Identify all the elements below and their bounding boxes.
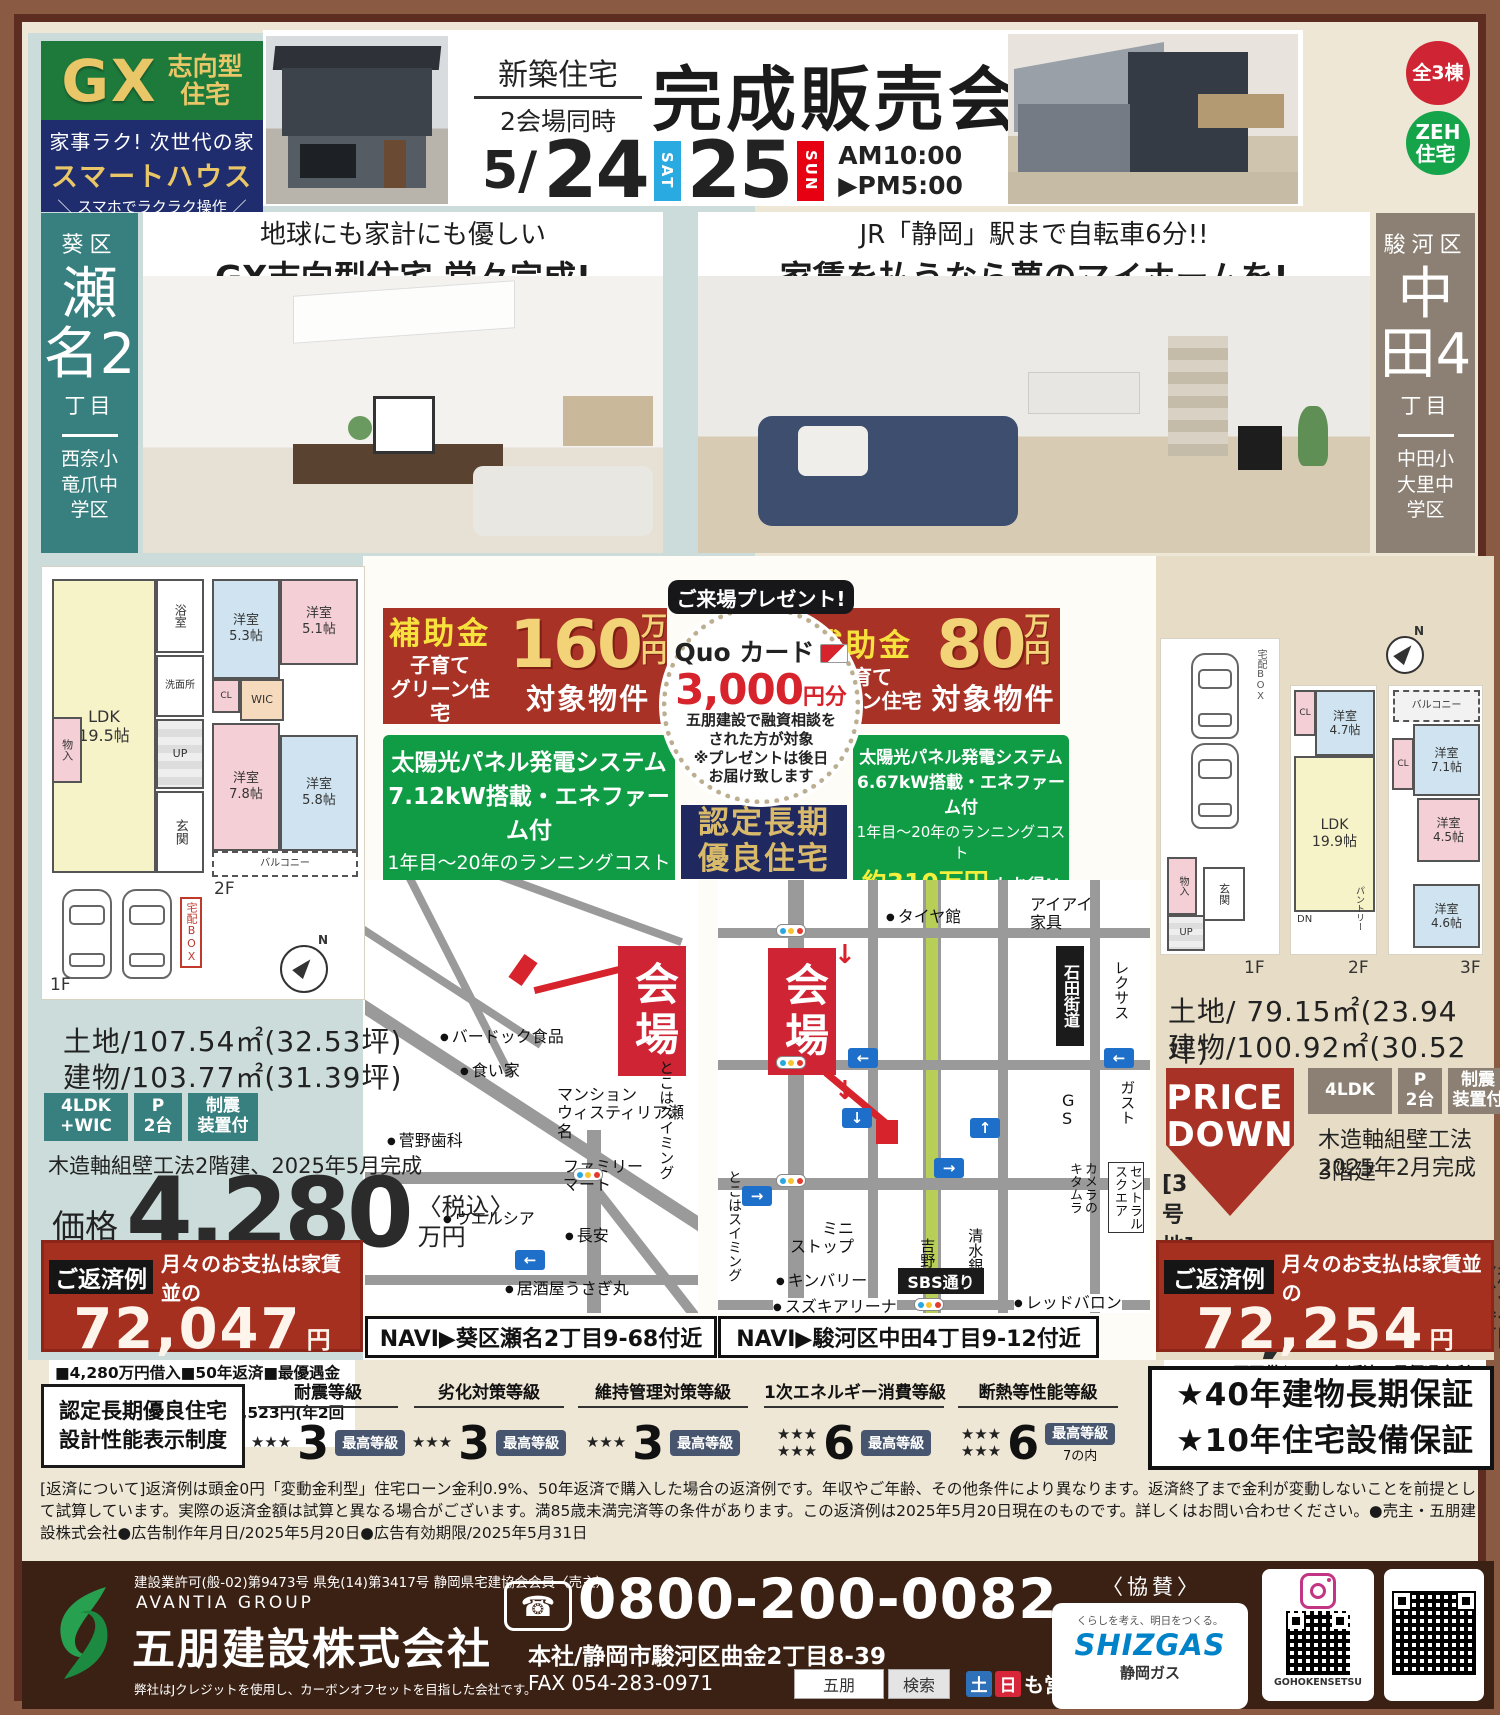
duplex-ground: [1008, 172, 1298, 204]
r2f-pantry: パントリー: [1353, 886, 1366, 931]
footer-address: 本社/静岡市駿河区曲金2丁目8-39: [528, 1637, 886, 1671]
house-door: [384, 140, 406, 188]
left-subsidy-amount: 160: [509, 614, 641, 677]
room-2f-78: 洋室 7.8帖: [212, 723, 280, 851]
gift-note: ※プレゼントは後日 お届け致します: [667, 749, 855, 787]
rating-item-4: 1次エネルギー消費等級 ★★★ ★★★6最高等級: [764, 1378, 944, 1470]
right-spec-badge-3: 制震 装置付: [1448, 1068, 1500, 1114]
left-property-sidebar: 葵区 瀬名2 丁目 西奈小 竜爪中 学区: [41, 213, 138, 553]
r2f-cl: CL: [1294, 690, 1316, 736]
rating-name: 劣化対策等級: [414, 1378, 564, 1408]
left-venue-box: 会場: [618, 946, 686, 1076]
room-2f-cl: CL: [212, 679, 240, 713]
rating-name: 耐震等級: [258, 1378, 398, 1408]
left-subsidy-box: 補助金 子育て グリーン住宅 160 万 円 対象物件: [383, 608, 667, 724]
cushion: [798, 426, 868, 476]
right-car-1: [1191, 653, 1239, 739]
left-town: 瀬名2: [41, 265, 138, 386]
gift-condition: 五朋建設で融資相談を された方が対象: [667, 711, 855, 749]
guarantee-line1: ★40年建物長期保証: [1176, 1372, 1490, 1419]
right-site-marker: [876, 1120, 898, 1144]
r2f-47: 洋室 4.7帖: [1315, 690, 1375, 756]
footer-fax: FAX 054-283-0971: [528, 1671, 713, 1695]
room-genkan: 玄関: [156, 791, 204, 873]
smart-line1: 家事ラク! 次世代の家: [41, 126, 263, 155]
fine-print: [返済について]返済例は頭金0円「変動金利型」住宅ローン金利0.9%、50年返済…: [40, 1478, 1476, 1544]
event-day2: 25: [687, 126, 792, 216]
arrow-sign: →: [742, 1186, 772, 1206]
rating-stars: ★★★ ★★★: [961, 1426, 1001, 1461]
left-district: 葵区: [41, 213, 138, 259]
right-floorplan-1f: 宅配BOX 物入 玄関 UP: [1160, 638, 1280, 955]
right-solar-box: 太陽光パネル発電システム 6.67kW搭載・エネファーム付 1年目〜20年のラン…: [853, 735, 1069, 887]
left-spec-badge-2: P 2台: [134, 1093, 182, 1141]
shizgas-box: くらしを考え、明日をつくる。 SHIZGAS 静岡ガス: [1052, 1603, 1248, 1709]
arrow-sign: →: [934, 1158, 964, 1178]
room-stairs-up: UP: [156, 719, 204, 789]
right-venue-label: 会場: [770, 962, 834, 1062]
art-frame: [373, 396, 435, 454]
rating-stars: ★★★: [412, 1434, 452, 1451]
right-interior-photo: [698, 276, 1370, 553]
plant2: [1298, 406, 1328, 466]
footer: 建設業許可(般-02)第9473号 県免(14)第3417号 静岡県宅建協会会員…: [22, 1561, 1494, 1709]
event-tags: 新築住宅 2会場同時: [474, 50, 642, 138]
rating-stars: ★★★: [586, 1434, 626, 1451]
road: [998, 880, 1008, 1313]
stairs: [1168, 336, 1228, 456]
left-repay-unit: 円: [307, 1326, 331, 1354]
room-mono-iri: 物入: [52, 717, 82, 783]
gx-badge: GX 志向型住宅: [41, 41, 263, 120]
left-venue-pointer: [534, 965, 625, 994]
arrow-sign: ←: [515, 1250, 545, 1270]
map-label: キンバリー: [776, 1272, 867, 1290]
room-2f-balcony: バルコニー: [212, 851, 358, 877]
event-day1-week: SAT: [654, 141, 681, 201]
left-interior-photo: [143, 276, 663, 553]
rating-name: 1次エネルギー消費等級: [764, 1378, 944, 1408]
ishida-road-label: 石田街道: [1056, 946, 1084, 1046]
arrow-sign: ↑: [970, 1118, 1000, 1138]
shizgas-brand: SHIZGAS: [1052, 1628, 1248, 1662]
certified-line2: 優良住宅: [681, 842, 847, 878]
right-floorplan-2f: CL 洋室 4.7帖 LDK 19.9帖 DN パントリー: [1290, 685, 1377, 955]
gx-type2: 住宅: [180, 80, 230, 109]
left-repay-label: ご返済例: [49, 1260, 153, 1294]
route-arrow-red: ↓: [834, 1076, 856, 1106]
rating-item-1: 耐震等級 ★★★3最高等級: [258, 1378, 398, 1470]
map-label: スズキアリーナ: [773, 1298, 897, 1313]
room-washroom: 洗面所: [156, 655, 204, 717]
event-time1: AM10:00: [838, 141, 962, 170]
footer-company: 五朋建設株式会社: [132, 1615, 492, 1677]
map-label: タイヤ館: [886, 908, 961, 926]
right-school-district: 中田小 大里中 学区: [1376, 447, 1475, 524]
right-room-mono: 物入: [1167, 857, 1197, 915]
left-subsidy-unit: 万 円: [641, 614, 667, 669]
gx-badge-text: GX: [61, 47, 157, 115]
rating-badge: 最高等級: [496, 1430, 566, 1456]
room-2f-58: 洋室 5.8帖: [280, 735, 358, 851]
car-2: [122, 889, 172, 979]
right-room-up: UP: [1167, 915, 1205, 951]
rating-item-2: 劣化対策等級 ★★★3最高等級: [414, 1378, 564, 1470]
qr-code: [1392, 1591, 1476, 1675]
left-school-district: 西奈小 竜爪中 学区: [41, 447, 138, 524]
traffic-signal: [914, 1298, 944, 1311]
right-repayment-box: ご返済例 月々のお支払は家賃並の 72,254 円 ■4,290万円借入■50年…: [1156, 1240, 1494, 1352]
rating-value: 6: [1007, 1416, 1039, 1470]
r3f-46: 洋室 4.6帖: [1413, 884, 1480, 948]
footer-phone: 0800-200-0082: [578, 1567, 1058, 1631]
traffic-signal: [776, 1174, 806, 1187]
rating-name: 断熱等性能等級: [958, 1378, 1118, 1408]
map-label: とこはスイミング: [657, 1060, 674, 1180]
rating-value: 3: [458, 1416, 490, 1470]
event-date-row: 5/ 24 SAT 25 SUN AM10:00▶PM5:00: [482, 126, 1042, 216]
r3f-71: 洋室 7.1帖: [1413, 724, 1480, 796]
r3f-45: 洋室 4.5帖: [1417, 798, 1480, 862]
map-label: 居酒屋うさぎ丸: [505, 1280, 629, 1298]
road: [1090, 880, 1100, 1313]
right-district: 駿河区: [1376, 213, 1475, 259]
arrow-sign: ←: [1104, 1048, 1134, 1068]
gift-unit: 円分: [803, 685, 847, 710]
map-label: レッドバロン: [1014, 1294, 1122, 1312]
right-plan-1f-label: 1F: [1244, 958, 1265, 978]
right-headline1: JR「静岡」駅まで自転車6分!!: [698, 214, 1370, 251]
r3f-balcony: バルコニー: [1393, 690, 1480, 722]
room-bath: 浴室: [156, 579, 204, 653]
certified-line1: 認定長期: [681, 806, 847, 842]
guarantee-box: ★40年建物長期保証 ★10年住宅設備保証: [1148, 1366, 1494, 1470]
map-label: 長安: [565, 1227, 609, 1245]
rating-item-3: 維持管理対策等級 ★★★3最高等級: [578, 1378, 748, 1470]
right-repay-label: ご返済例: [1164, 1260, 1274, 1294]
right-solar-l1: 太陽光パネル発電システム: [853, 743, 1069, 768]
arrow-sign: ←: [848, 1048, 878, 1068]
event-month: 5/: [482, 141, 537, 201]
rating-badge: 最高等級: [335, 1430, 405, 1456]
left-subsidy-label: 補助金: [383, 608, 497, 653]
arrow-sign: ↓: [842, 1108, 872, 1128]
instagram-icon: [1300, 1573, 1336, 1609]
room-2f-51: 洋室 5.1帖: [280, 579, 358, 665]
shizgas-name: 静岡ガス: [1052, 1662, 1248, 1683]
house-roof: [273, 46, 442, 70]
event-day1: 24: [543, 126, 648, 216]
road: [492, 880, 683, 946]
right-room-takuhai: 宅配BOX: [1253, 649, 1268, 702]
nyc-frame: [1238, 426, 1282, 470]
rating-badge: 最高等級: [861, 1430, 931, 1456]
avantia-logo: [46, 1581, 124, 1685]
r3f-cl: CL: [1392, 738, 1414, 790]
right-property-sidebar: 駿河区 中田4 丁目 中田小 大里中 学区: [1376, 213, 1475, 553]
left-price-unit: 万円: [418, 1223, 466, 1251]
left-headline1: 地球にも家計にも優しい: [143, 214, 663, 251]
flyer-inner: GX 志向型住宅 家事ラク! 次世代の家 スマートハウス ＼ スマホでラクラク操…: [14, 14, 1486, 1701]
sofa: [473, 466, 653, 536]
left-chome: 丁目: [41, 390, 138, 420]
map-label: ガスト: [1118, 1080, 1135, 1125]
route-arrow-red: ↓: [834, 940, 856, 970]
gift-amount: 3,000: [675, 665, 803, 714]
house-body: [282, 68, 432, 136]
exterior-photo-left: [266, 36, 448, 204]
right-repay-unit: 円: [1430, 1326, 1454, 1354]
left-headline: 地球にも家計にも優しい GX志向型住宅 堂々完成!: [143, 212, 663, 276]
gift-medallion: Quo カード 3,000円分 五朋建設で融資相談を された方が対象 ※プレゼン…: [662, 606, 860, 804]
rating-badge2: 7の内: [1045, 1445, 1115, 1464]
right-subsidy-amount: 80: [937, 614, 1025, 677]
duplex-deck: [1198, 94, 1284, 128]
footer-eco-note: 弊社はJクレジットを使用し、カーボンオフセットを目指した会社です。: [134, 1679, 536, 1698]
units-badge-text: 全3棟: [1412, 63, 1463, 84]
search-button: 検索: [888, 1669, 950, 1699]
right-spec-badge-2: P 2台: [1398, 1068, 1442, 1114]
rating-value: 3: [632, 1416, 664, 1470]
gx-type1: 志向型: [168, 52, 243, 81]
left-solar-box: 太陽光パネル発電システム 7.12kW搭載・エネファーム付 1年目〜20年のラン…: [383, 735, 675, 887]
left-repay-amount: 72,047: [73, 1297, 301, 1362]
qr-panel: [1384, 1569, 1484, 1701]
map-label: G S: [1062, 1092, 1074, 1129]
quo-card-icon: [820, 644, 848, 663]
units-badge: 全3棟: [1406, 41, 1470, 105]
plant: [348, 416, 372, 440]
left-solar-l2: 7.12kW搭載・エネファーム付: [383, 777, 675, 845]
right-subsidy-unit: 万 円: [1024, 614, 1050, 669]
traffic-signal: [573, 1168, 603, 1181]
right-room-genkan: 玄関: [1203, 867, 1245, 921]
exterior-photo-right: [1008, 34, 1298, 204]
right-plan-3f-label: 3F: [1460, 958, 1481, 978]
map-label: アイアイ 家具: [1030, 896, 1092, 933]
rating-badge: 最高等級: [670, 1430, 740, 1456]
instagram-qr-code: [1286, 1611, 1350, 1675]
sunday-tag: 日: [995, 1671, 1021, 1697]
left-solar-l1: 太陽光パネル発電システム: [383, 743, 675, 777]
left-subsidy-sub: 子育て グリーン住宅: [383, 653, 497, 725]
traffic-signal: [776, 924, 806, 937]
footer-group: AVANTIA GROUP: [136, 1593, 314, 1613]
left-repayment-box: ご返済例 月々のお支払は家賃並の 72,047 円 ■4,280万円借入■50年…: [41, 1240, 363, 1352]
rating-badge: 最高等級: [1045, 1423, 1115, 1445]
right-access-map: 会場 タイヤ館 アイアイ 家具 石田街道 レクサス ガスト G S ミニ ストッ…: [718, 880, 1150, 1313]
right-floorplan-3f: バルコニー 洋室 7.1帖 CL 洋室 4.5帖 洋室 4.6帖: [1388, 685, 1483, 955]
rating-stars: ★★★: [251, 1434, 291, 1451]
smart-line2: スマートハウス: [41, 155, 263, 194]
right-solar-l2: 6.67kW搭載・エネファーム付: [853, 768, 1069, 818]
saturday-tag: 土: [966, 1671, 992, 1697]
room-2f-wic: WIC: [240, 679, 284, 721]
certified-badge: 認定長期 優良住宅: [681, 805, 847, 879]
house-window: [300, 144, 356, 178]
right-sidebar-divider: [1398, 434, 1454, 437]
guarantee-line2: ★10年住宅設備保証: [1176, 1418, 1490, 1465]
map-label: レクサス: [1112, 960, 1129, 1020]
event-time2: ▶PM5:00: [838, 171, 963, 200]
right-compass-icon: N: [1386, 636, 1424, 674]
ratings-title-box: 認定長期優良住宅 設計性能表示制度: [41, 1384, 245, 1468]
r2f-dn: DN: [1297, 914, 1312, 925]
rating-name: 維持管理対策等級: [578, 1378, 748, 1408]
map-label: ミニ ストップ: [790, 1220, 854, 1257]
left-plan-1f-label: 1F: [50, 975, 71, 995]
left-land-area: 土地/107.54㎡(32.53坪): [63, 1020, 402, 1060]
left-building-area: 建物/103.77㎡(31.39坪): [63, 1056, 402, 1096]
gift-card-label: Quo カード: [674, 638, 814, 667]
navy-sofa: [758, 416, 1018, 526]
car-1: [62, 889, 112, 979]
left-spec-badge-3: 制震 装置付: [188, 1093, 258, 1141]
instagram-handle: GOHOKENSETSU: [1262, 1677, 1374, 1688]
right-spec-badge-1: 4LDK: [1308, 1068, 1392, 1114]
map-label: バードック食品: [440, 1028, 564, 1046]
shizgas-slogan: くらしを考え、明日をつくる。: [1052, 1613, 1248, 1628]
left-sidebar-divider: [62, 434, 118, 437]
right-plan-2f-label: 2F: [1348, 958, 1369, 978]
map-label: マンション ウィスティリア瀬名: [557, 1086, 698, 1141]
gift-ribbon: ご来場プレゼント!: [668, 580, 854, 614]
rating-item-5: 断熱等性能等級 ★★★ ★★★6 最高等級7の内: [958, 1378, 1118, 1470]
left-subsidy-target: 対象物件: [509, 676, 667, 718]
left-spec-badge-1: 4LDK +WIC: [44, 1093, 128, 1141]
window-roller: [293, 280, 515, 344]
road: [868, 880, 878, 1313]
left-price-tax: 〈税込〉: [418, 1193, 514, 1221]
left-site-marker: [508, 954, 537, 986]
map-label: とこはスイミング: [726, 1170, 742, 1282]
right-chome: 丁目: [1376, 390, 1475, 420]
right-car-2: [1191, 743, 1239, 829]
phone-icon: ☎: [504, 1581, 572, 1631]
left-plan-2f-label: 2F: [214, 879, 235, 899]
map-label: 食い家: [460, 1062, 520, 1080]
instagram-qr-panel: GOHOKENSETSU: [1262, 1569, 1374, 1701]
flyer-page: GX 志向型住宅 家事ラク! 次世代の家 スマートハウス ＼ スマホでラクラク操…: [0, 0, 1500, 1715]
search-keyword-box: 五朋: [794, 1669, 884, 1699]
rating-stars: ★★★ ★★★: [777, 1426, 817, 1461]
sbs-street-label: SBS通り: [898, 1268, 984, 1294]
room-2f-53: 洋室 5.3帖: [212, 579, 280, 679]
right-town: 中田4: [1376, 265, 1475, 386]
dining-set: [563, 396, 653, 446]
left-navi-bar: NAVI▶葵区瀬名2丁目9-68付近: [365, 1316, 717, 1358]
room-takuhai-box: 宅配BOX: [180, 897, 202, 968]
rating-value: 6: [823, 1416, 855, 1470]
event-day2-week: SUN: [797, 141, 824, 201]
map-label: カメラの キタムラ: [1066, 1162, 1096, 1214]
right-navi-bar: NAVI▶駿河区中田4丁目9-12付近: [718, 1316, 1099, 1358]
left-floorplan: LDK 19.5帖 物入 浴室 洗面所 UP 玄関 洋室 5.3帖 洋室 5.1…: [41, 566, 365, 1000]
map-label: セントラル スクエア: [1108, 1162, 1144, 1233]
event-tag1: 新築住宅: [474, 50, 642, 99]
traffic-signal: [776, 1056, 806, 1069]
map-label: 菅野歯科: [387, 1132, 463, 1150]
right-subsidy-target: 対象物件: [931, 676, 1055, 718]
right-repay-amount: 72,254: [1196, 1297, 1424, 1362]
left-solar-l3: 1年目〜20年のランニングコスト: [383, 848, 675, 875]
smart-house-badge: 家事ラク! 次世代の家 スマートハウス ＼ スマホでラクラク操作 ／: [41, 120, 263, 212]
kitchen-island: [1028, 372, 1140, 414]
zeh-badge: ZEH 住宅: [1406, 111, 1470, 175]
right-headline: JR「静岡」駅まで自転車6分!! 家賃を払うなら夢のマイホームを!: [698, 212, 1370, 276]
sponsor-label: 〈協賛〉: [1102, 1571, 1202, 1601]
duplex-wall: [1018, 104, 1130, 174]
left-venue-label: 会場: [620, 961, 684, 1061]
right-solar-l3: 1年目〜20年のランニングコスト: [853, 821, 1069, 863]
rating-value: 3: [297, 1416, 329, 1470]
left-compass-icon: N: [280, 945, 328, 993]
